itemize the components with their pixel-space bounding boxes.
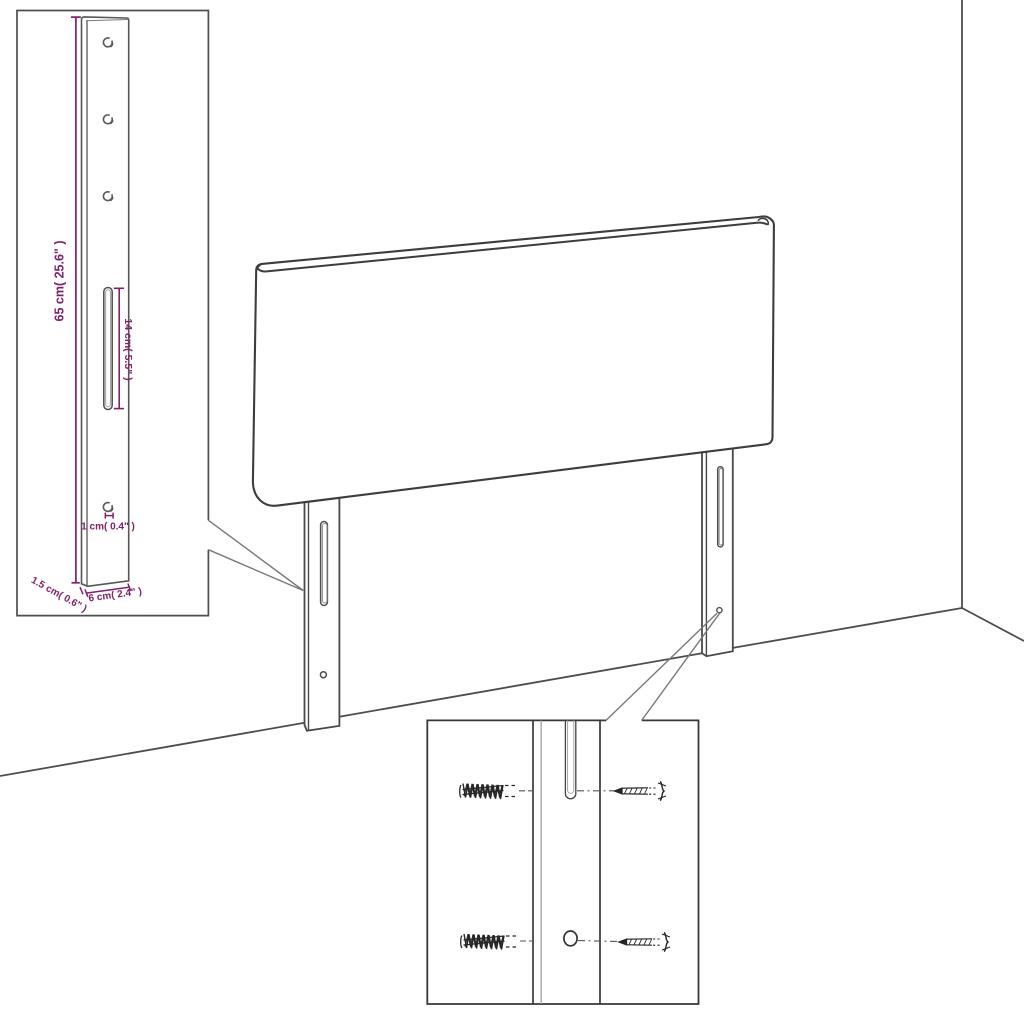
svg-text:14 cm( 5.5" ): 14 cm( 5.5" ) [122,318,134,380]
svg-text:65 cm( 25.6" ): 65 cm( 25.6" ) [53,241,67,322]
svg-text:1 cm( 0.4" ): 1 cm( 0.4" ) [81,522,135,533]
